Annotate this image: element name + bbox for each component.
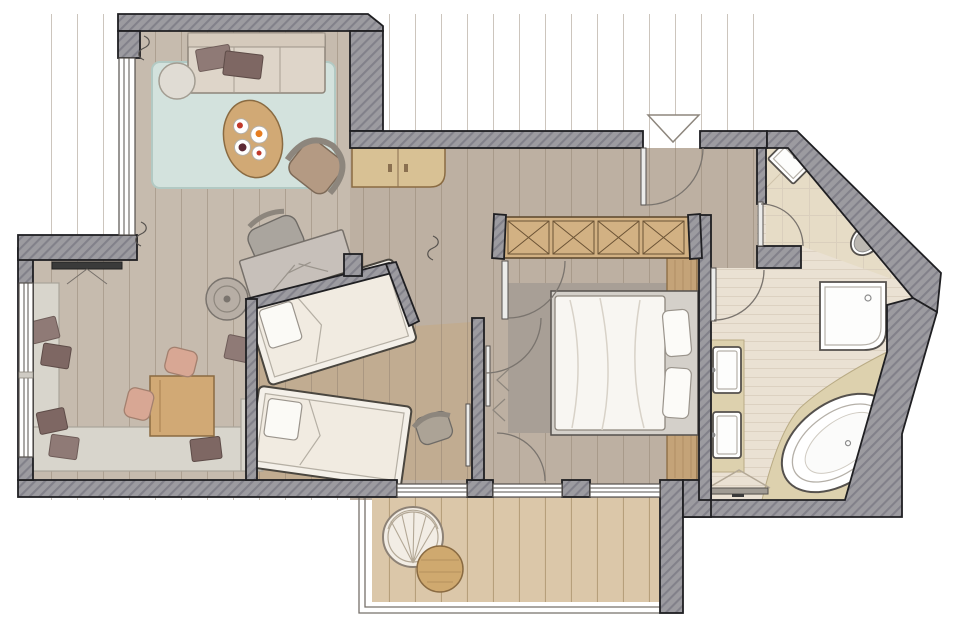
wall-entry-pier [700,131,767,148]
floors [33,14,913,613]
wall-tv [52,262,122,269]
wall-wc-west [757,148,766,204]
wall-pier-balcony-2 [562,480,590,497]
wall-south-west [18,480,397,497]
bench-cushion [40,343,71,369]
side-table [417,546,463,592]
wall-living-east [350,31,383,131]
sofa [188,33,325,93]
living-room-window [119,58,135,235]
balcony-sliding-door-bedroom-1 [493,484,562,497]
pillow [662,309,692,357]
wall-wardrobe-cap-left [492,214,506,259]
study-window [19,283,33,457]
wall-kids-pier [344,254,362,276]
wall-wardrobe-cap-right [688,214,702,259]
duvet [555,296,665,430]
wall-pier-balcony-1 [467,480,493,497]
floor-plan [0,0,960,640]
wall-balcony-east [660,480,683,613]
wall-kids-hall [472,318,484,480]
round-side-table [206,278,248,320]
wall-wc-step [757,246,801,268]
wall-top-living [118,14,383,31]
bench-cushion [49,434,80,460]
pillow [264,398,303,440]
balcony-sliding-door-kids [397,484,467,497]
sideboard [352,148,445,187]
pillow [662,367,691,419]
sofa-cushion [223,51,264,79]
wall-kids-west [246,299,257,480]
bench-cushion [190,436,222,461]
wardrobe [504,217,690,258]
wall-hall-north [350,131,643,148]
corner-shower [820,282,886,350]
wall-step-west [18,235,137,260]
balcony-sliding-door-bedroom-2 [590,484,660,497]
wall-corner-topleft [118,31,140,58]
double-bed [551,291,698,435]
pouf [159,63,195,99]
